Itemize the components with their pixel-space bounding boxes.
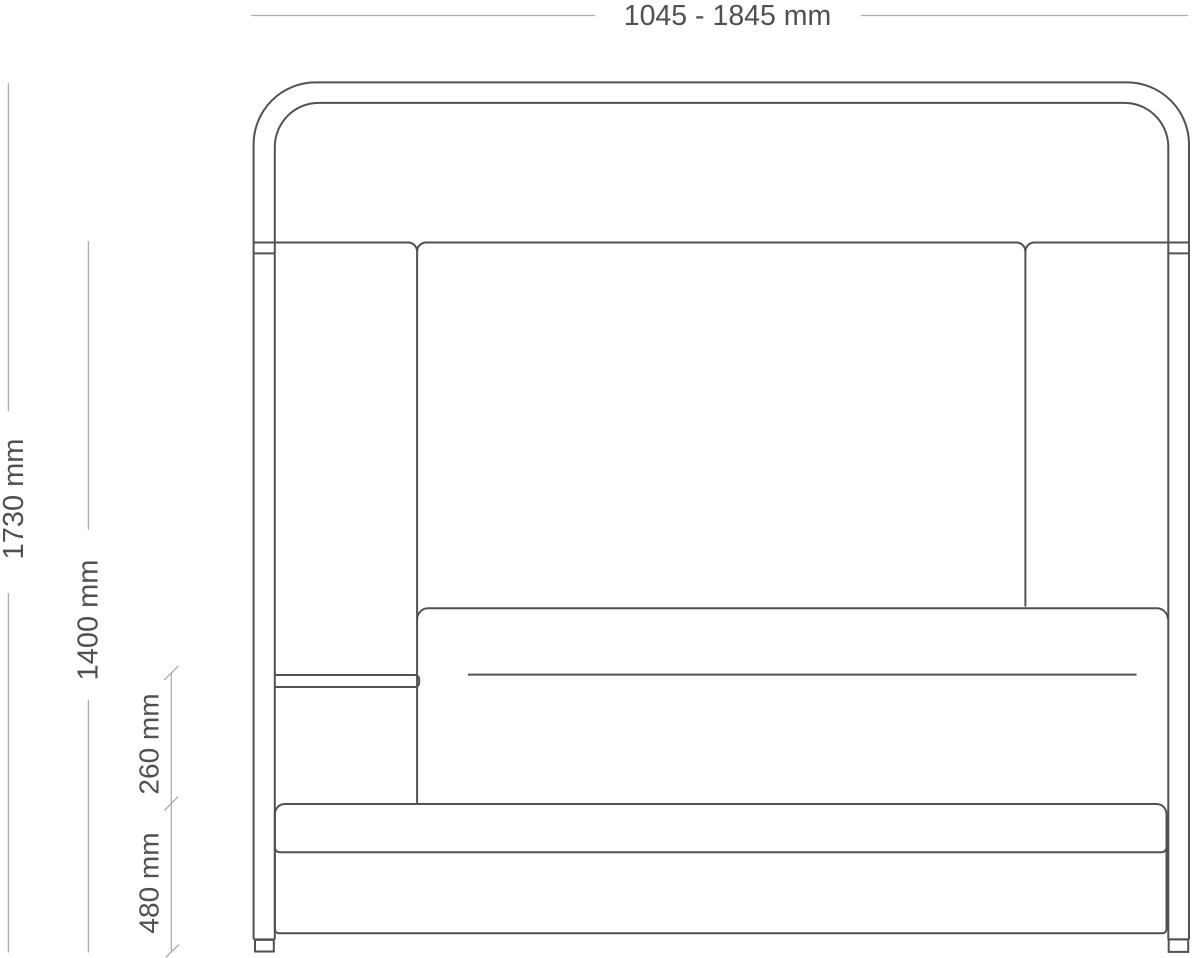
svg-text:1400 mm: 1400 mm (73, 560, 105, 681)
svg-text:1730 mm: 1730 mm (0, 439, 30, 560)
svg-text:260 mm: 260 mm (134, 693, 165, 794)
svg-text:1045 - 1845 mm: 1045 - 1845 mm (624, 0, 832, 32)
svg-text:480 mm: 480 mm (134, 832, 165, 933)
